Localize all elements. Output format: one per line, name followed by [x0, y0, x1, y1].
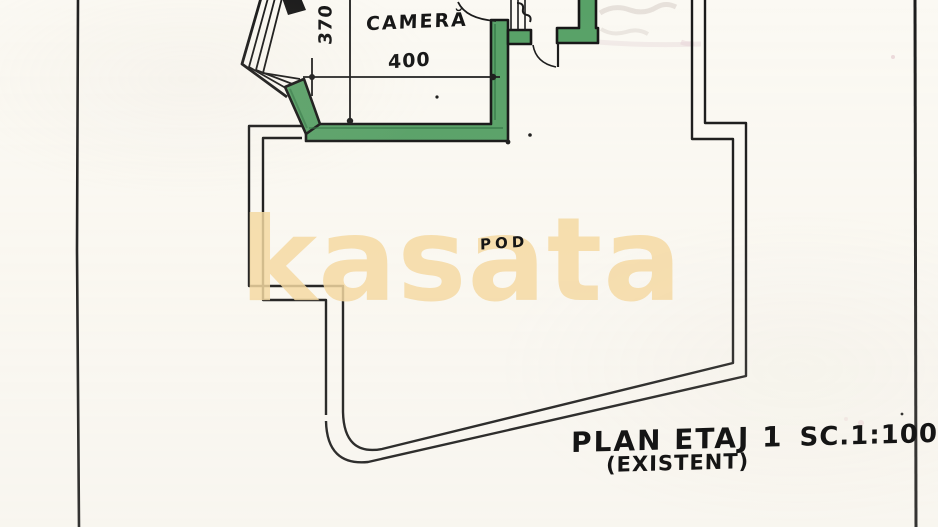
room-label: CAMERĂ: [366, 9, 468, 35]
ink-speck: [901, 413, 904, 416]
floor-plan-scan: kasata CAMERĂ 400 370 POD PLAN ETAJ 1SC.…: [0, 0, 938, 527]
door-arc-hall: [533, 45, 556, 67]
plan-subtitle: (EXISTENT): [606, 449, 749, 477]
dimension-label-height: 370: [316, 0, 337, 51]
attic-label: POD: [480, 232, 528, 253]
ink-speck: [528, 133, 532, 137]
dim-dot: [347, 118, 353, 124]
dimension-label-width: 400: [388, 48, 431, 73]
plan-scale-text: SC.1:100: [799, 419, 938, 453]
wall-t-arm: [508, 30, 531, 44]
ink-speck: [435, 95, 438, 98]
ink-speck: [506, 140, 511, 145]
wall-top-right-L: [557, 0, 598, 43]
handwritten-scribble: [517, 3, 531, 22]
bay-window-outer-line: [242, 0, 287, 97]
dim-dot: [490, 74, 496, 80]
dim-dot: [309, 74, 315, 80]
bay-window-wall-stub: [282, 0, 306, 15]
frame-line-left: [77, 0, 79, 527]
watermark: kasata: [240, 203, 682, 319]
